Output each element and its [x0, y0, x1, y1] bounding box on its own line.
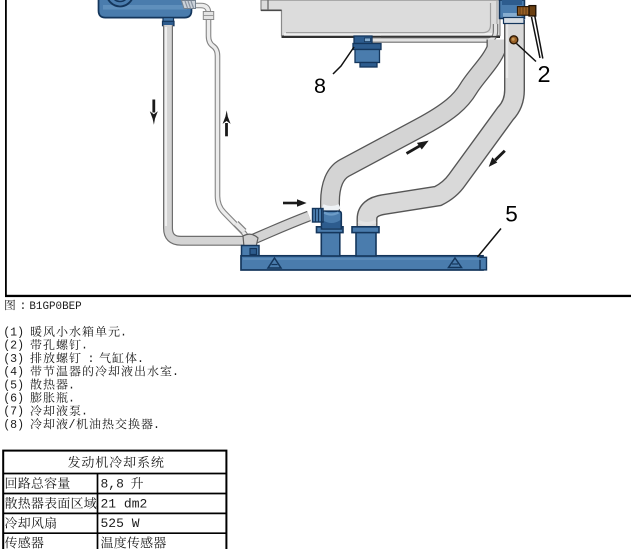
svg-text:5: 5 [505, 202, 518, 227]
svg-text:(7): (7) [3, 406, 24, 419]
svg-text:(4): (4) [3, 366, 24, 379]
svg-text:.: . [137, 353, 144, 366]
svg-text:(6): (6) [3, 393, 24, 406]
svg-text:(3): (3) [3, 353, 24, 366]
svg-text:.: . [153, 419, 160, 432]
svg-text::: : [88, 353, 95, 366]
svg-text:8,8: 8,8 [101, 476, 124, 491]
svg-text:(1): (1) [3, 327, 24, 340]
svg-text:B1GP0BEP: B1GP0BEP [29, 301, 81, 313]
svg-text:.: . [68, 393, 75, 406]
svg-text:.: . [81, 340, 88, 353]
svg-text:525 W: 525 W [101, 516, 140, 531]
svg-text:.: . [120, 327, 127, 340]
svg-text:8: 8 [314, 74, 326, 98]
svg-text:/: / [69, 419, 76, 432]
svg-text:21 dm2: 21 dm2 [101, 496, 148, 511]
svg-text:(8): (8) [3, 419, 24, 432]
svg-text:.: . [68, 379, 75, 392]
svg-text:2: 2 [537, 61, 550, 87]
svg-text:.: . [81, 406, 88, 419]
svg-text:(5): (5) [3, 379, 24, 392]
svg-text::: : [20, 300, 27, 313]
svg-text:(2): (2) [3, 340, 24, 353]
svg-text:.: . [172, 366, 179, 379]
